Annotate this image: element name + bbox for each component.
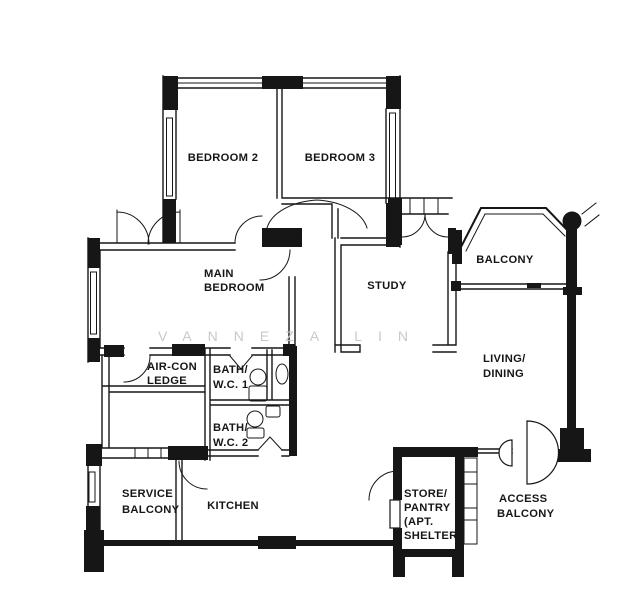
wall [88, 338, 100, 362]
room-label-bath-wc1: W.C. 1 [213, 379, 248, 391]
room-label-study: STUDY [367, 280, 407, 292]
wall [85, 540, 396, 546]
window-glazing [135, 83, 438, 458]
basin-icon [276, 364, 288, 384]
wall [88, 238, 100, 268]
room-label-main-bedroom: MAIN [204, 268, 234, 280]
room-label-bath-wc2: BATH/ [213, 422, 248, 434]
wall [388, 198, 402, 245]
room-label-main-bedroom: BEDROOM [204, 282, 265, 294]
room-label-access-balcony: BALCONY [497, 508, 555, 520]
wall [262, 228, 302, 247]
room-label-access-balcony: ACCESS [499, 493, 548, 505]
bifold-door-icon [258, 437, 282, 450]
wall [258, 536, 296, 549]
shelter-wall [393, 447, 402, 500]
balcony-parapet-inner [466, 214, 565, 251]
room-label-store-pantry: STORE/ [404, 488, 447, 500]
room-label-bath-wc1: BATH/ [213, 364, 248, 376]
room-label-kitchen: KITCHEN [207, 500, 259, 512]
wall [88, 76, 566, 541]
service-duct-rungs [464, 472, 477, 520]
room-label-living-dining: LIVING/ [483, 353, 526, 365]
wall [451, 281, 461, 291]
entrance-column [560, 428, 584, 450]
wall [86, 506, 100, 534]
room-label-bath-wc2: W.C. 2 [213, 437, 248, 449]
toilet-icon [249, 386, 267, 401]
window-service-balcony-left [89, 472, 95, 502]
door-swing-icon [179, 461, 207, 489]
watermark-text: VANNEZA LIN [158, 328, 424, 344]
tick-marks [582, 203, 599, 226]
room-label-store-pantry: SHELTER [404, 530, 457, 542]
wall [163, 76, 178, 110]
wall [168, 446, 208, 460]
column-icon [563, 212, 582, 231]
shelter-wall [452, 551, 464, 577]
room-label-aircon-ledge: AIR-CON [147, 361, 197, 373]
entrance-door-icon [499, 440, 512, 466]
floor-plan: VANNEZA LIN BEDROOM 2 BEDROOM 3 MAIN BED… [0, 0, 638, 600]
window-main-bedroom-left [91, 272, 97, 334]
room-label-store-pantry: (APT. [404, 516, 433, 528]
room-label-store-pantry: PANTRY [404, 502, 451, 514]
wall [163, 199, 176, 243]
door-swing-icon [260, 250, 290, 280]
wall [262, 76, 303, 89]
room-label-bedroom2: BEDROOM 2 [188, 152, 258, 164]
room-label-aircon-ledge: LEDGE [147, 375, 187, 387]
room-label-bedroom3: BEDROOM 3 [305, 152, 375, 164]
wall [566, 229, 577, 295]
service-duct [464, 458, 477, 544]
wall [563, 287, 582, 295]
wall [172, 344, 205, 356]
shelter-wall [393, 551, 405, 577]
wall [567, 295, 576, 428]
door-swing-icon [235, 216, 262, 243]
wall [104, 345, 124, 357]
shelter-door-leaf [390, 500, 400, 528]
room-label-service-balcony: BALCONY [122, 504, 180, 516]
wall [527, 283, 541, 288]
wall [452, 230, 462, 264]
room-label-balcony: BALCONY [476, 254, 534, 266]
toilet-icon [247, 411, 263, 427]
room-label-living-dining: DINING [483, 368, 524, 380]
entrance-door-icon [527, 421, 559, 484]
wall [289, 346, 297, 456]
window-bedroom3-right [390, 113, 396, 199]
room-label-service-balcony: SERVICE [122, 488, 173, 500]
shelter-wall [393, 447, 478, 457]
floor-plan-page: VANNEZA LIN BEDROOM 2 BEDROOM 3 MAIN BED… [0, 0, 638, 600]
double-door-swing-icon [402, 214, 448, 237]
window-bedroom2-left [167, 118, 173, 196]
toilet-icon [247, 428, 264, 438]
toilet-icon [250, 369, 266, 385]
wall [386, 76, 401, 109]
wall [86, 444, 102, 466]
wall [84, 530, 104, 572]
basin-icon [266, 406, 280, 417]
